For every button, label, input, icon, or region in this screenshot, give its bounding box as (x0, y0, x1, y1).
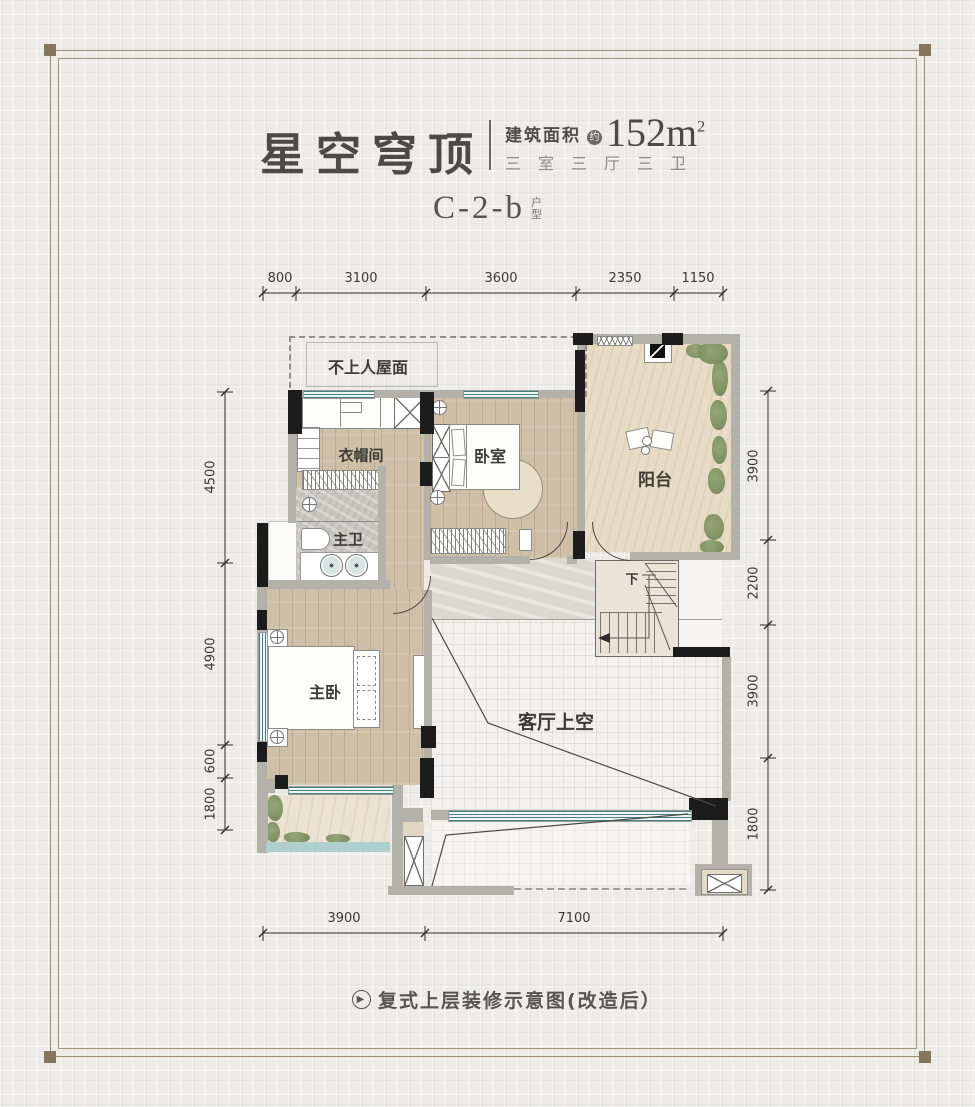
caption: ▶ 复式上层装修示意图(改造后） (352, 986, 662, 1013)
railing-hatch (597, 336, 633, 346)
dim-left-0: 4500 (204, 460, 219, 493)
wall (392, 808, 423, 822)
dim-top-1: 3100 (344, 271, 377, 286)
plant (698, 342, 728, 364)
wall (392, 822, 403, 886)
shaft-x (404, 836, 424, 886)
caption-text: 复式上层装修示意图(改造后） (378, 986, 662, 1013)
page-title: 星空穹顶 (260, 118, 484, 183)
window (288, 786, 394, 795)
area-row: 建筑面积 约 152m2 (505, 113, 705, 153)
area-sup: 2 (697, 119, 705, 136)
layout-spec: 三室三厅三卫 (505, 150, 703, 174)
dim-left-3: 1800 (204, 787, 219, 820)
stair-flight-lower (600, 612, 662, 653)
column (257, 523, 268, 587)
area-label: 建筑面积 (505, 121, 581, 153)
plant (710, 400, 727, 430)
area-number: 152m (606, 110, 697, 155)
dim-top-4: 1150 (681, 271, 714, 286)
room-label-bedroom: 卧室 (474, 443, 506, 467)
area-approx-badge: 约 (587, 130, 602, 145)
unit-code: C-2-b (433, 190, 525, 227)
column (257, 610, 267, 630)
play-icon: ▶ (352, 990, 371, 1009)
wall (431, 810, 448, 820)
shower-head-icon (302, 497, 317, 512)
wall (388, 886, 514, 895)
pillow (451, 429, 466, 457)
frame-corner-square (919, 1051, 931, 1063)
bath-niche (268, 521, 297, 589)
room-label-roof: 不上人屋面 (328, 354, 408, 378)
room-label-cloakroom: 衣帽间 (338, 445, 383, 466)
window (303, 390, 375, 399)
water-strip (266, 842, 390, 852)
wall (378, 466, 386, 582)
plant (712, 436, 727, 464)
plant (708, 468, 725, 494)
dim-top-2: 3600 (484, 271, 517, 286)
dim-right-1: 2200 (747, 566, 762, 599)
column (420, 462, 432, 486)
balcony-table (641, 446, 650, 455)
wall (722, 657, 731, 801)
toilet-icon (301, 528, 330, 550)
ceiling-light-icon (430, 490, 445, 505)
sink-icon (345, 554, 368, 577)
column (420, 758, 434, 798)
wall (630, 552, 733, 560)
floorplan-page: 星空穹顶 建筑面积 约 152m2 三室三厅三卫 C-2-b 户型 (0, 0, 975, 1107)
plant (704, 514, 724, 540)
wall (265, 779, 275, 793)
plant (266, 822, 280, 842)
wall (712, 820, 728, 866)
stairs-down-label: 下 (625, 569, 638, 588)
column (275, 775, 288, 789)
room-label-living-void: 客厅上空 (518, 708, 594, 735)
dim-right-0: 3900 (747, 449, 762, 482)
room-label-balcony: 阳台 (638, 466, 672, 491)
room-label-master-bath: 主卫 (333, 529, 363, 550)
pillow (451, 459, 466, 487)
pillow (357, 656, 376, 686)
door-panel (519, 529, 532, 551)
frame-corner-square (44, 1051, 56, 1063)
column (662, 333, 683, 345)
plant (267, 795, 283, 821)
ceiling-light-icon (270, 630, 284, 644)
room-label-master-bedroom: 主卧 (309, 679, 341, 703)
ceiling-light-icon (432, 400, 447, 415)
hall-floor (430, 558, 595, 620)
sink-icon (320, 554, 343, 577)
column (288, 390, 302, 434)
column (420, 392, 434, 434)
dim-right-2: 3900 (747, 674, 762, 707)
bed-head-line (466, 424, 467, 488)
elevator-icon (707, 874, 742, 893)
window (463, 390, 539, 399)
window (258, 632, 268, 742)
column (573, 531, 585, 559)
cloakroom-rail (302, 470, 381, 490)
dim-top-3: 2350 (608, 271, 641, 286)
shower-divider (296, 521, 378, 522)
closet-handle (340, 402, 362, 413)
dim-left-2: 600 (204, 749, 219, 774)
skylight-icon (650, 343, 665, 358)
window-large (448, 810, 692, 822)
stair-flight-upper (646, 563, 676, 610)
frame-corner-square (44, 44, 56, 56)
frame-corner-square (919, 44, 931, 56)
wall (731, 334, 740, 560)
bedroom-dresser (430, 528, 506, 554)
column (421, 726, 436, 748)
pillow (357, 690, 376, 720)
column (673, 647, 730, 657)
wall (430, 556, 530, 564)
column (573, 333, 593, 345)
unit-type-label: 户型 (531, 197, 545, 221)
balcony-table (642, 436, 652, 446)
plant (712, 360, 728, 396)
void-lower-strip (431, 822, 690, 886)
dim-top-0: 800 (268, 271, 293, 286)
stair-landing-gap (677, 560, 722, 655)
column (257, 742, 267, 762)
ceiling-light-icon (270, 730, 284, 744)
dim-left-1: 4900 (204, 637, 219, 670)
header-divider (489, 120, 491, 170)
dim-bottom-1: 7100 (557, 911, 590, 926)
wall (258, 580, 390, 589)
area-value: 152m2 (606, 113, 705, 153)
unit-row: C-2-b 户型 (433, 190, 545, 227)
column (689, 798, 728, 820)
dim-right-3: 1800 (747, 807, 762, 840)
column (575, 350, 585, 412)
balcony-chair (650, 429, 675, 451)
closet-divider (380, 396, 381, 427)
dim-bottom-0: 3900 (327, 911, 360, 926)
